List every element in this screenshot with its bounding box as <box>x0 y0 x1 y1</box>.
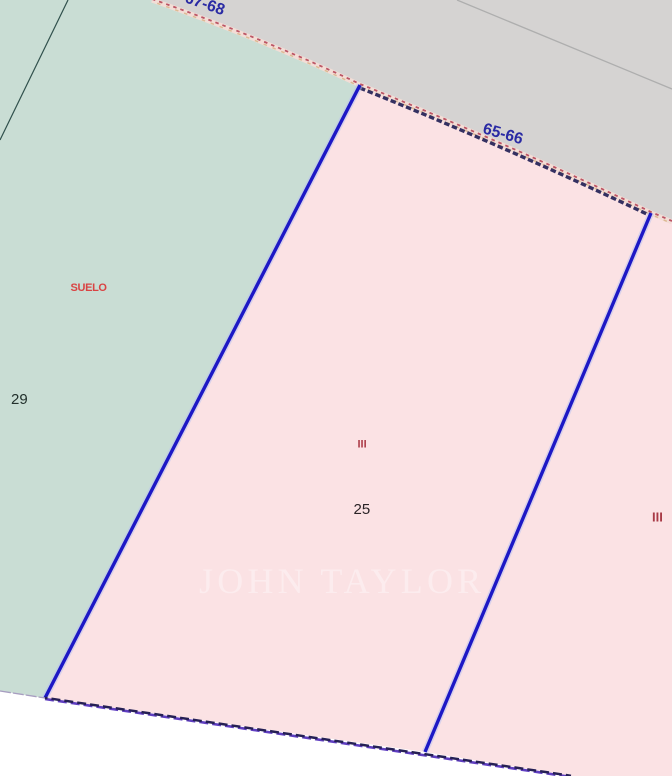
svg-text:25: 25 <box>354 501 371 518</box>
svg-text:III: III <box>358 439 367 451</box>
svg-text:29: 29 <box>11 391 28 408</box>
svg-text:III: III <box>652 510 663 525</box>
svg-text:SUELO: SUELO <box>71 282 108 294</box>
svg-text:JOHN TAYLOR: JOHN TAYLOR <box>199 561 485 601</box>
